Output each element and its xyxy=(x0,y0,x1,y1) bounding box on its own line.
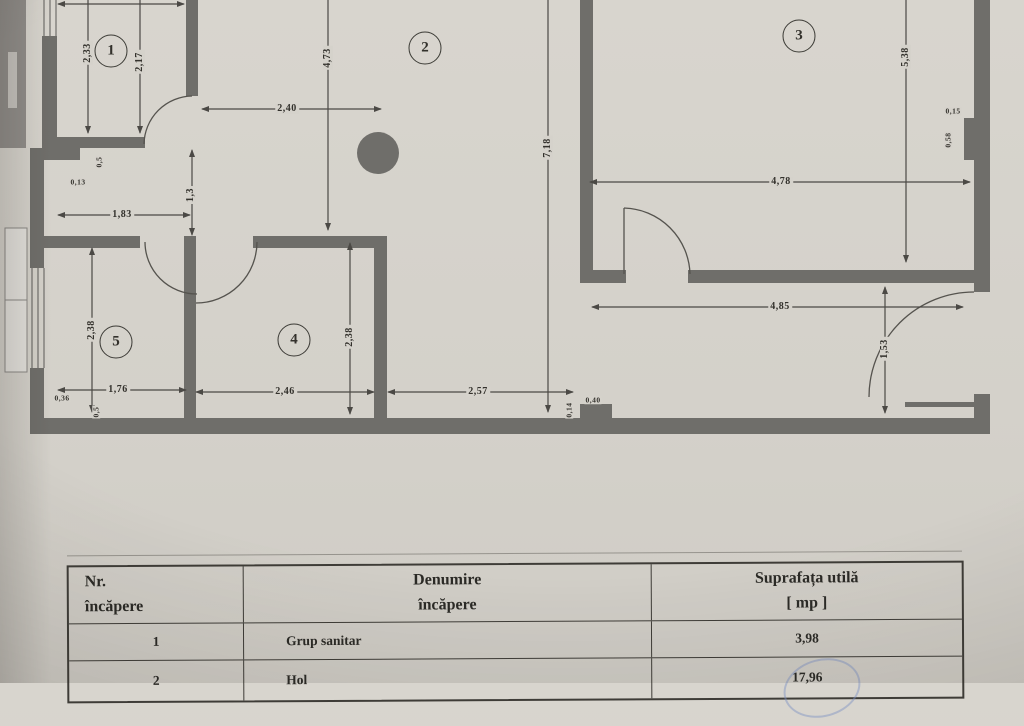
wall-mid-left xyxy=(30,236,140,248)
dim-label-hol-width: 2,57 xyxy=(466,387,490,397)
scanned-floor-plan-page: 2,33 2,17 2,40 4,73 7,18 5,38 4,78 0,15 … xyxy=(0,0,1024,683)
header-suprafata-line2: [ mp ] xyxy=(786,591,827,616)
entry-threshold xyxy=(905,402,975,407)
table-top-rule xyxy=(67,551,962,557)
dim-label-wall-gap: 1,3 xyxy=(186,186,196,204)
wall-bottom-step xyxy=(580,404,612,418)
header-nr-line1: Nr. xyxy=(85,570,106,595)
room-number-3-label: 3 xyxy=(795,28,803,45)
structural-column xyxy=(357,132,399,174)
wall-room1-room2 xyxy=(186,0,198,96)
room-number-1-label: 1 xyxy=(107,43,115,60)
wall-room4-top xyxy=(253,236,387,248)
walls xyxy=(30,0,990,434)
dim-label-left-width: 1,83 xyxy=(110,210,134,220)
dim-label-lower-width: 4,85 xyxy=(768,302,792,312)
row2-nr: 2 xyxy=(69,660,244,701)
dim-label-niche-width: 0,15 xyxy=(944,107,961,115)
wall-room3-bottom-right xyxy=(688,270,974,283)
wall-room5-room4 xyxy=(184,236,196,434)
wall-left-middle xyxy=(30,148,44,268)
left-window-sill xyxy=(5,228,27,372)
room-number-1: 1 xyxy=(95,35,128,68)
wall-room3-bottom-left xyxy=(580,270,626,283)
room-number-4: 4 xyxy=(278,324,311,357)
table-row: 1 Grup sanitar 3,98 xyxy=(69,620,962,662)
dim-label-lower-height: 1,53 xyxy=(880,337,890,361)
dim-label-hall-top: 2,40 xyxy=(275,104,299,114)
photo-edge-highlight xyxy=(8,52,17,108)
floor-plan-drawing xyxy=(0,0,1024,460)
wall-room1-bottom xyxy=(55,137,145,148)
dim-label-niche-height: 0,58 xyxy=(944,131,952,148)
dim-label-room3-width: 4,78 xyxy=(769,177,793,187)
dim-label-room5-width: 1,76 xyxy=(106,385,130,395)
dim-label-room2-height: 4,73 xyxy=(323,46,333,70)
row1-area: 3,98 xyxy=(652,620,962,658)
wall-right-upper xyxy=(974,0,990,292)
header-denumire: Denumire încăpere xyxy=(244,564,652,622)
dim-label-notch-width: 0,5 xyxy=(95,156,103,169)
dim-label-room4-height: 2,38 xyxy=(345,325,355,349)
room-number-2-label: 2 xyxy=(421,40,429,57)
header-nr-line2: încăpere xyxy=(85,595,143,620)
wall-bottom xyxy=(30,418,990,434)
wall-left-upper xyxy=(42,36,57,150)
wall-right-lower xyxy=(974,394,990,434)
door-arc-room3 xyxy=(624,208,690,274)
header-denumire-line2: încăpere xyxy=(418,593,476,618)
room-number-4-label: 4 xyxy=(290,332,298,349)
header-suprafata: Suprafața utilă [ mp ] xyxy=(652,563,962,621)
header-denumire-line1: Denumire xyxy=(413,568,481,593)
row1-nr: 1 xyxy=(69,623,244,660)
dim-label-sill-b: 0,5 xyxy=(92,406,100,419)
row1-name: Grup sanitar xyxy=(244,621,652,659)
dim-label-room1-left: 2,33 xyxy=(83,41,93,65)
dim-label-room3-height: 5,38 xyxy=(901,45,911,69)
dim-label-total-height: 7,18 xyxy=(543,136,553,160)
row2-name: Hol xyxy=(244,658,652,700)
dim-label-notch-height: 0,13 xyxy=(69,178,86,186)
room-number-3: 3 xyxy=(783,20,816,53)
door-arc-room1 xyxy=(144,96,192,144)
room-number-5-label: 5 xyxy=(112,334,120,351)
room-number-5: 5 xyxy=(100,326,133,359)
dim-label-room4-width: 2,46 xyxy=(273,387,297,397)
room-number-2: 2 xyxy=(409,32,442,65)
dim-label-room1-right: 2,17 xyxy=(135,50,145,74)
door-arc-room4 xyxy=(196,242,257,303)
header-nr-incapere: Nr. încăpere xyxy=(69,566,244,623)
dim-label-sill-a: 0,36 xyxy=(53,394,70,402)
wall-room4-right xyxy=(374,236,387,434)
wall-room2-room3 xyxy=(580,0,593,283)
table-header-row: Nr. încăpere Denumire încăpere Suprafața… xyxy=(69,563,962,625)
header-suprafata-line1: Suprafața utilă xyxy=(755,566,859,591)
dim-label-step-width: 0,40 xyxy=(584,396,601,404)
dim-label-step-height: 0,14 xyxy=(565,401,573,418)
wall-niche xyxy=(964,118,976,160)
dim-label-room5-height: 2,38 xyxy=(87,318,97,342)
